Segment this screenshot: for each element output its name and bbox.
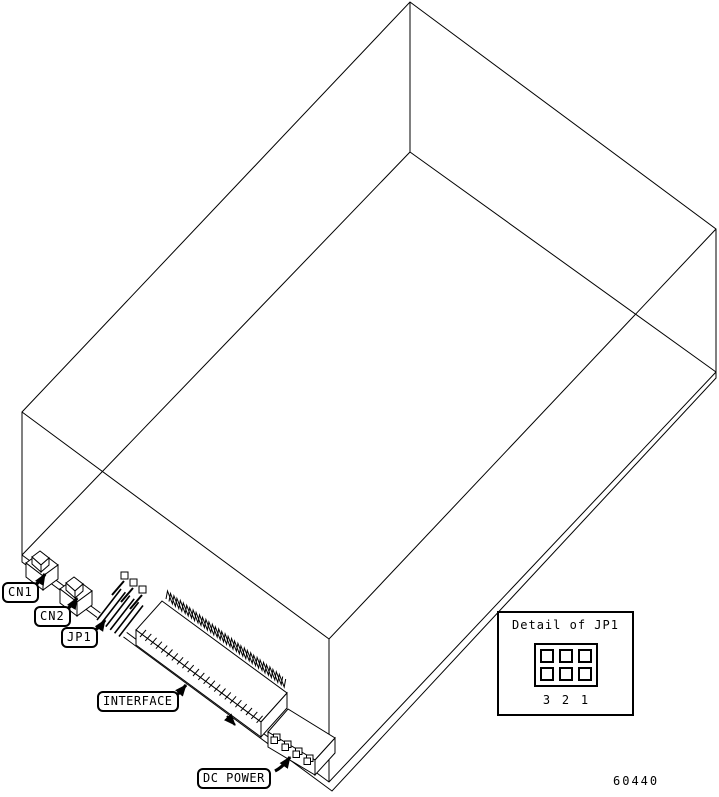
dc-power-pin	[304, 758, 311, 765]
figure-part-number: 60440	[613, 774, 659, 788]
callout-label-interface: INTERFACE	[97, 691, 179, 712]
pin-number-1: 1	[578, 693, 592, 707]
pin-number-3: 3	[540, 693, 554, 707]
drive-connector-figure: CN1 CN2 JP1 INTERFACE DC POWER Detail of…	[0, 0, 719, 797]
callout-label-jp1: JP1	[61, 627, 98, 648]
dc-power-pin	[282, 744, 289, 751]
jp1-pin-tip	[139, 586, 146, 593]
jumper-pin-square	[578, 649, 592, 663]
jumper-pin-square	[559, 667, 573, 681]
dc-power-leader-arrow	[275, 757, 290, 771]
callout-label-cn1: CN1	[2, 582, 39, 603]
dc-power-pin	[271, 737, 278, 744]
dc-power-connector	[268, 709, 335, 775]
jumper-pin-square	[578, 667, 592, 681]
callout-label-cn2: CN2	[34, 606, 71, 627]
enclosure-hidden-edges	[22, 2, 716, 555]
interface-connector	[136, 591, 287, 737]
jp1-jumper-diagram	[534, 643, 598, 687]
jp1-detail-title: Detail of JP1	[499, 618, 632, 632]
callout-label-dc-power: DC POWER	[197, 768, 271, 789]
jp1-detail-inset: Detail of JP1 3 2 1	[497, 611, 634, 716]
dc-power-pin	[293, 751, 300, 758]
jp1-pin-numbers: 3 2 1	[535, 693, 597, 707]
jp1-pin-tip	[130, 579, 137, 586]
jumper-pin-square	[559, 649, 573, 663]
jumper-pin-square	[540, 649, 554, 663]
jumper-pin-square	[540, 667, 554, 681]
jp1-pin-tip	[121, 572, 128, 579]
base-plate-edges	[22, 372, 716, 791]
pin-number-2: 2	[559, 693, 573, 707]
